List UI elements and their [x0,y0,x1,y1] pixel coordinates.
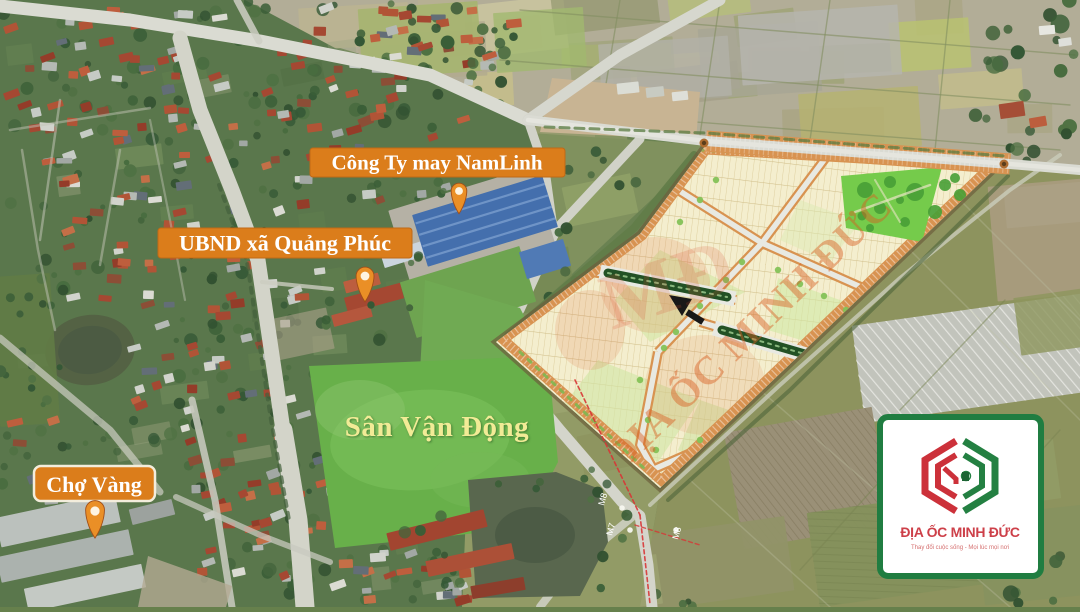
svg-text:Thay đổi cuộc sống - Mọi lúc m: Thay đổi cuộc sống - Mọi lúc mọi nơi [911,544,1009,551]
svg-text:Công Ty may NamLinh: Công Ty may NamLinh [331,151,542,175]
svg-text:ĐỊA ỐC MINH ĐỨC: ĐỊA ỐC MINH ĐỨC [900,523,1020,540]
svg-text:UBND xã Quảng Phúc: UBND xã Quảng Phúc [179,231,391,256]
svg-text:Chợ Vàng: Chợ Vàng [46,472,142,497]
svg-text:Sân Vận Động: Sân Vận Động [345,411,529,443]
